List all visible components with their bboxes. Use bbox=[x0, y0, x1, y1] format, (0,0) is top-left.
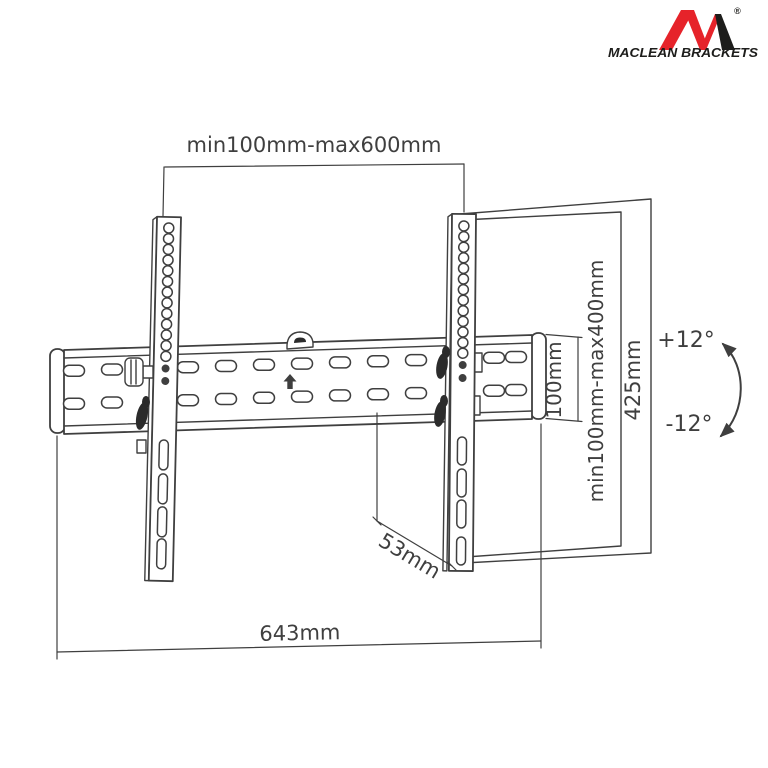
dim-vesa-height-label: min100mm-max400mm bbox=[584, 260, 608, 503]
dim-bracket-height-label: 425mm bbox=[621, 340, 645, 421]
brand-name: MACLEAN BRACKETS bbox=[608, 45, 758, 60]
maclean-m-icon bbox=[659, 10, 735, 50]
tilt-down-label: -12° bbox=[666, 412, 713, 437]
tilt-up-label: +12° bbox=[657, 328, 714, 353]
page: min100mm-max600mm 100mm min100mm-max400m… bbox=[0, 0, 768, 768]
tilt-annotation: +12° -12° bbox=[657, 328, 740, 437]
dim-rail-height: 100mm bbox=[542, 335, 582, 422]
dim-rail-width-label: 643mm bbox=[259, 620, 340, 646]
dim-vesa-width-label: min100mm-max600mm bbox=[187, 133, 442, 157]
safety-hook-clip bbox=[287, 332, 313, 349]
dim-profile-depth-label: 53mm bbox=[374, 528, 444, 583]
brand-logo: MACLEAN BRACKETS ® bbox=[608, 6, 758, 60]
bracket-technical-drawing: min100mm-max600mm 100mm min100mm-max400m… bbox=[0, 0, 768, 768]
registered-mark: ® bbox=[734, 6, 741, 16]
tilt-arc-arrow-icon bbox=[721, 344, 741, 436]
dim-rail-height-label: 100mm bbox=[542, 341, 566, 418]
right-arm-slots bbox=[456, 437, 466, 565]
left-vesa-arm bbox=[145, 217, 181, 582]
right-vesa-arm bbox=[443, 214, 476, 571]
dim-vesa-width: min100mm-max600mm bbox=[163, 133, 464, 216]
